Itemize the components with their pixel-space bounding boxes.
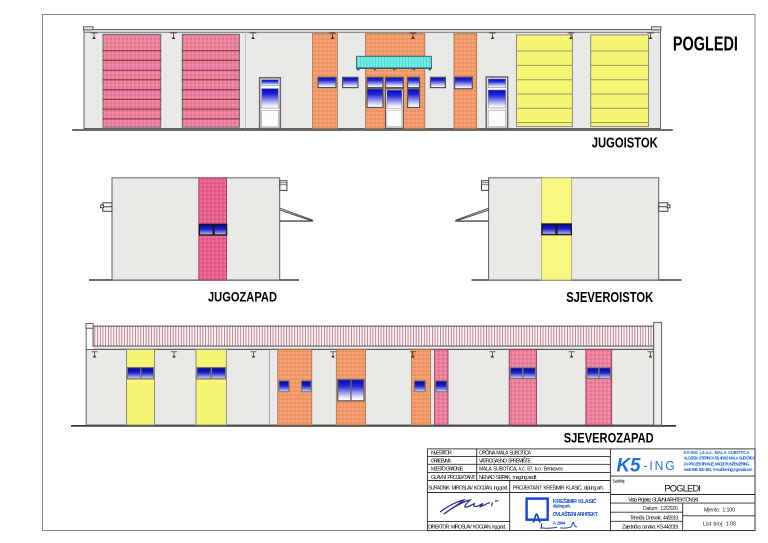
svg-text:Mjerilo: 1:100: Mjerilo: 1:100 [704, 508, 735, 514]
svg-text:ZA PROJEKTIRANJE, NADZOR, INŽE: ZA PROJEKTIRANJE, NADZOR, INŽENJERING [684, 461, 750, 466]
svg-text:List broj: 1.08: List broj: 1.08 [703, 521, 736, 527]
svg-text:PROJEKTANT: KREŠIMIR KLASIĆ, d: PROJEKTANT: KREŠIMIR KLASIĆ, dipl.ing.ar… [513, 485, 604, 492]
svg-text:K5: K5 [617, 455, 641, 476]
svg-text:POGLEDI: POGLEDI [673, 33, 738, 55]
svg-text:OPĆINA MALA SUBOTICA: OPĆINA MALA SUBOTICA [479, 450, 532, 457]
svg-text:dipl.ing.arh.: dipl.ing.arh. [553, 503, 571, 508]
svg-text:NENAD SRPAK, mag.ing.aedif.: NENAD SRPAK, mag.ing.aedif. [479, 475, 537, 481]
svg-text:Sadržaj: Sadržaj [613, 478, 625, 483]
svg-text:Zajednička oznaka: KS-44/2019.: Zajednička oznaka: KS-44/2019. [622, 524, 679, 530]
svg-text:Datum: 12/2020.: Datum: 12/2020. [643, 506, 679, 512]
svg-text:MJESTO GRADNJE:: MJESTO GRADNJE: [431, 467, 464, 473]
svg-text:INVESTITOR:: INVESTITOR: [431, 451, 452, 457]
svg-text:Vrsta Projekta: GLAVNI ARHITEK: Vrsta Projekta: GLAVNI ARHITEKTONSKI [628, 497, 698, 503]
svg-text:POGLEDI: POGLEDI [664, 483, 701, 494]
svg-text:JUGOISTOK: JUGOISTOK [592, 136, 658, 152]
svg-text:SJEVEROISTOK: SJEVEROISTOK [566, 289, 653, 306]
svg-text:KS-ING j.d.o.o. MALA SUBOTICA: KS-ING j.d.o.o. MALA SUBOTICA [684, 450, 750, 455]
svg-text:JUGOZAPAD: JUGOZAPAD [208, 290, 277, 306]
svg-text:GLAVNI PROJEKTANT:: GLAVNI PROJEKTANT: [431, 475, 476, 481]
svg-text:A: A [532, 512, 541, 526]
svg-text:SJEVEROZAPAD: SJEVEROZAPAD [564, 430, 654, 446]
svg-text:GRAĐEVINA:: GRAĐEVINA: [431, 459, 451, 465]
svg-text:A 2994: A 2994 [553, 520, 566, 525]
svg-text:VATROGASNO SPREMIŠTE: VATROGASNO SPREMIŠTE [479, 458, 532, 465]
svg-text:Tehnički Dnevnik: 44/2019.: Tehnički Dnevnik: 44/2019. [630, 515, 679, 521]
svg-text:mob:098 540 891, e-mail:ks-ing: mob:098 540 891, e-mail:ks-ing@gmail.com [684, 467, 753, 472]
svg-text:ALOJZIJA STEPINCA 56, 40315 MA: ALOJZIJA STEPINCA 56, 40315 MALA SUBOTIC… [684, 456, 756, 461]
svg-text:SURADNIK: MIROSLAV KOCIJAN, in: SURADNIK: MIROSLAV KOCIJAN, ing.grad. [428, 486, 508, 492]
svg-text:-ING: -ING [644, 458, 677, 473]
svg-text:DIREKTOR: MIROSLAV KOCIJAN, in: DIREKTOR: MIROSLAV KOCIJAN, ing.grad. [428, 524, 506, 530]
svg-text:MALA SUBOTICA, k.č. 87, k.o. B: MALA SUBOTICA, k.č. 87, k.o. Benkovec [479, 467, 564, 473]
svg-text:OVLAŠTENI ARHITEKT: OVLAŠTENI ARHITEKT [553, 510, 598, 518]
